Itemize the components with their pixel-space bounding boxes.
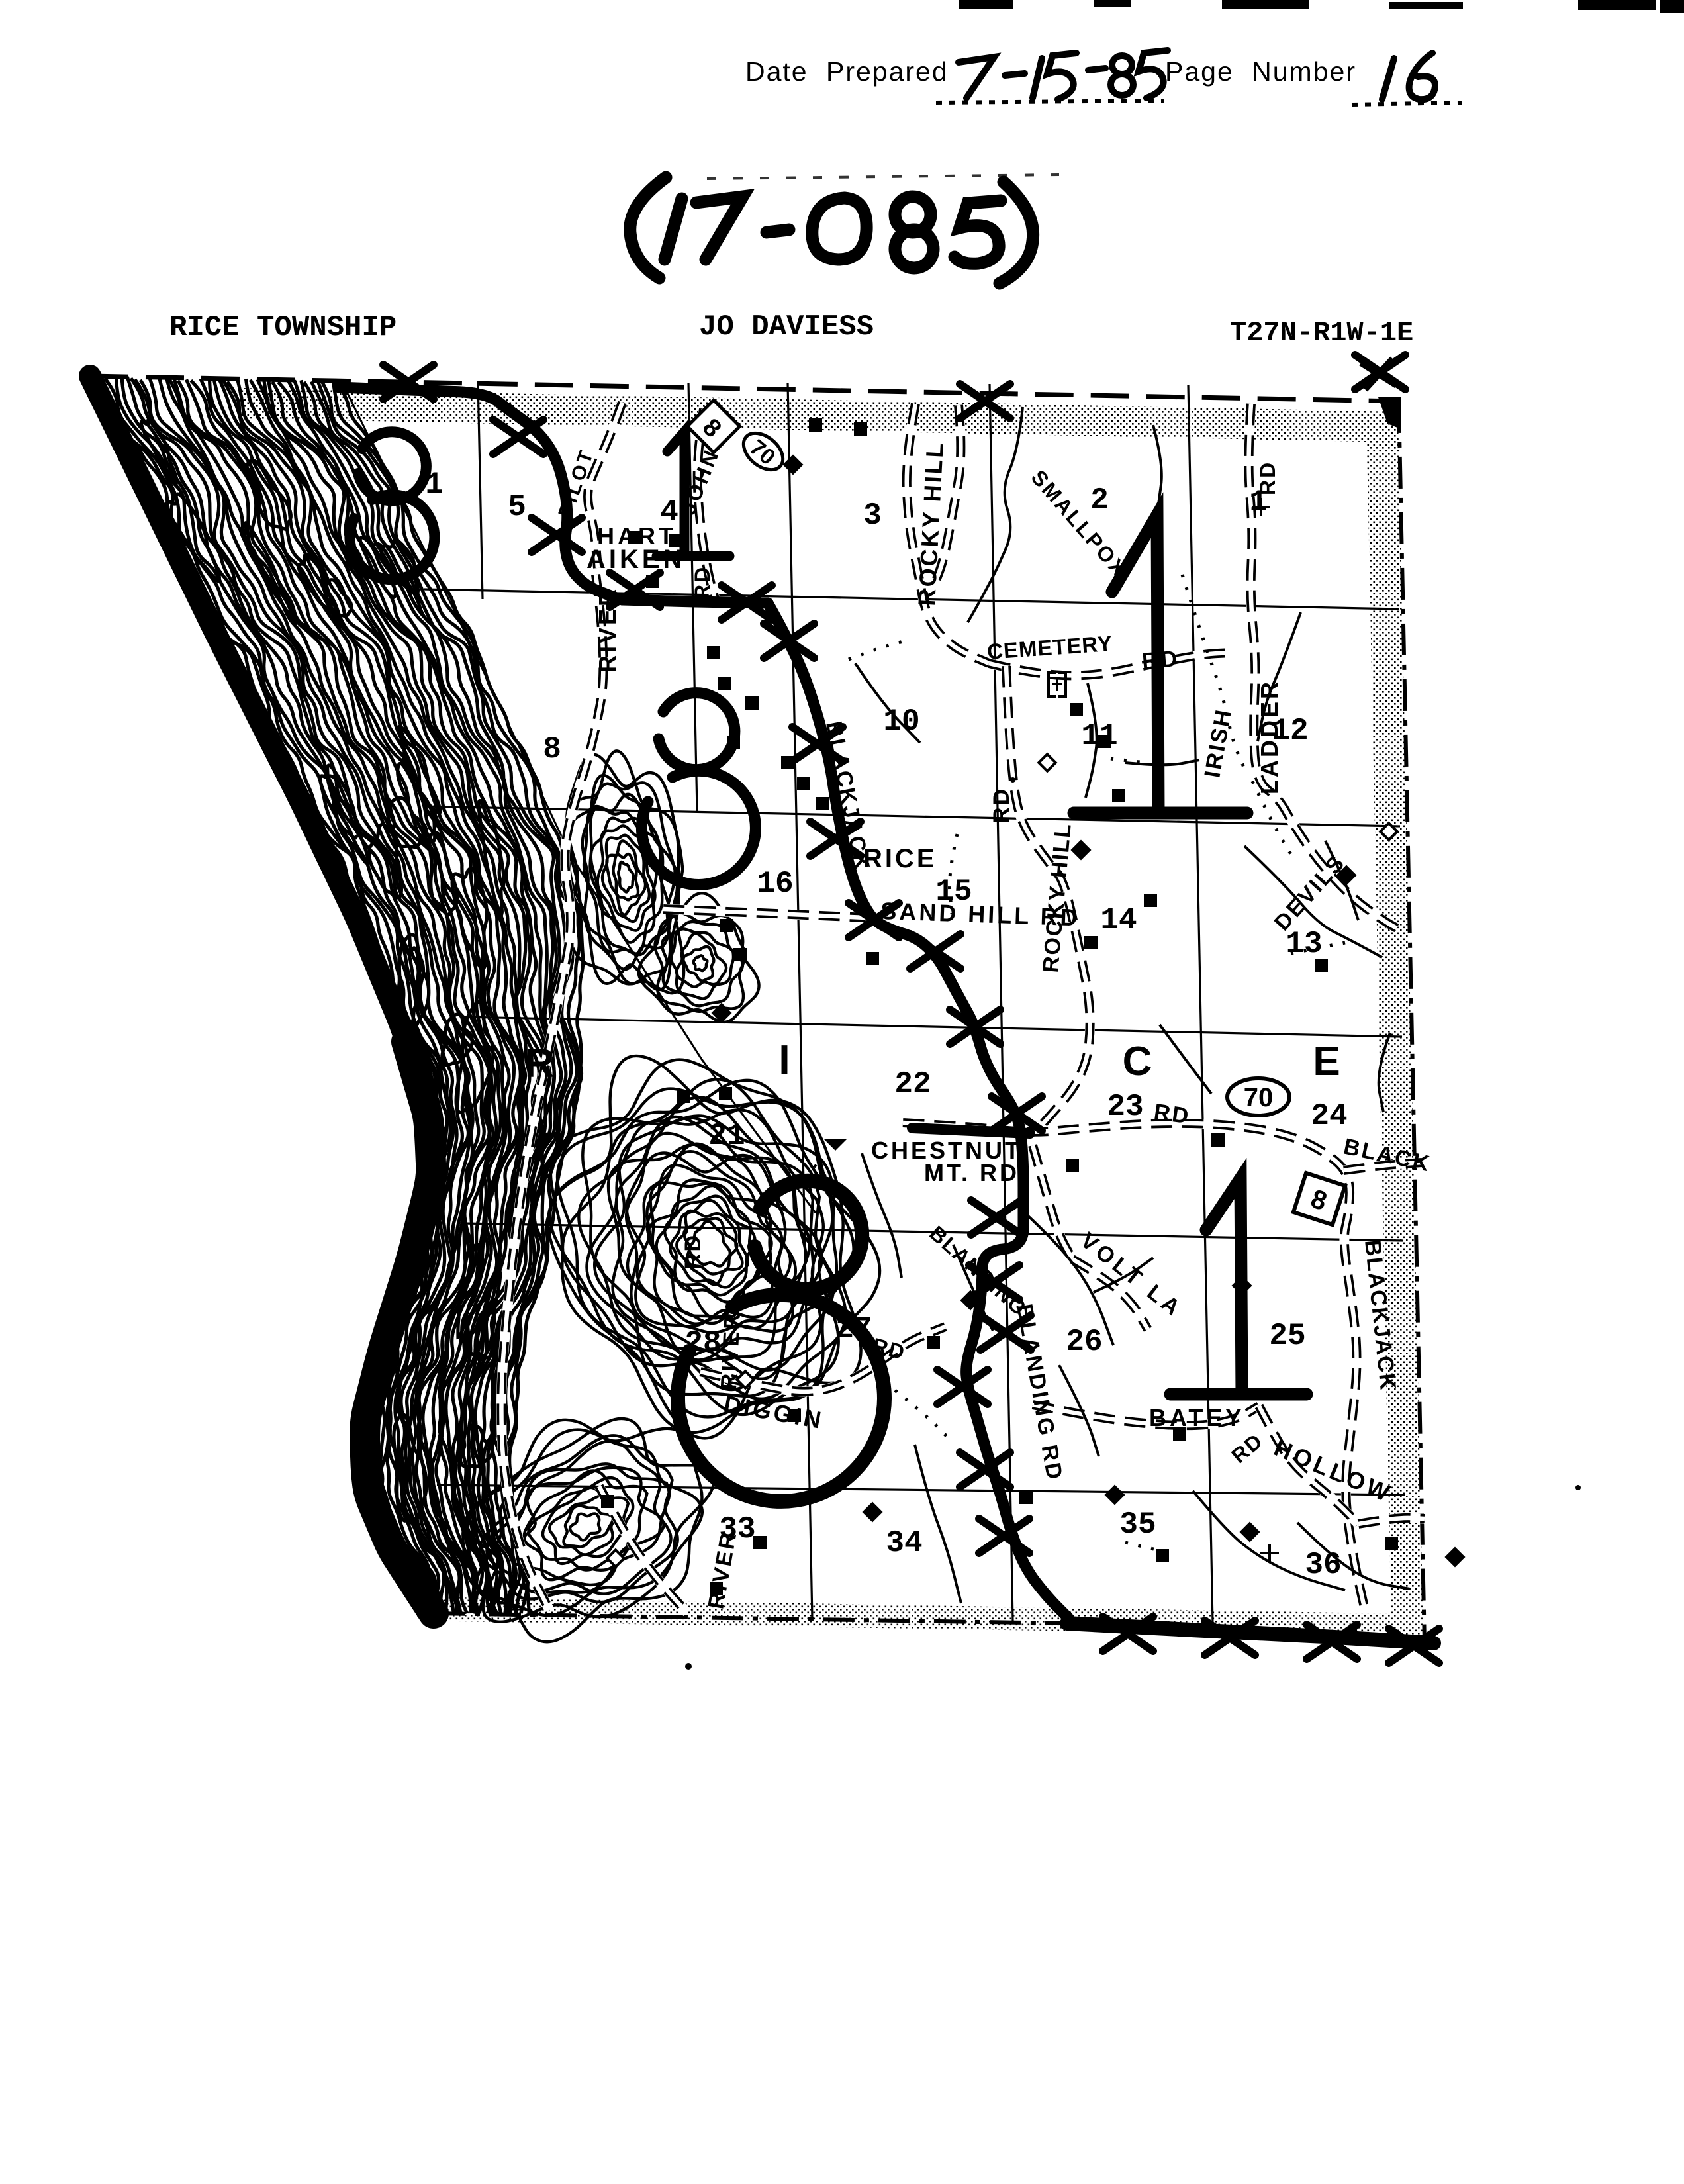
svg-text:1: 1 xyxy=(1249,485,1268,520)
svg-text:2: 2 xyxy=(1090,483,1109,518)
svg-text:10: 10 xyxy=(883,704,919,739)
svg-text:5: 5 xyxy=(508,490,526,524)
svg-text:BATEY: BATEY xyxy=(1149,1404,1244,1431)
svg-text:13: 13 xyxy=(1286,927,1322,961)
svg-text:R: R xyxy=(525,1041,555,1086)
svg-text:3: 3 xyxy=(863,499,882,533)
svg-text:12: 12 xyxy=(1272,714,1308,748)
svg-text:23: 23 xyxy=(1107,1090,1143,1124)
svg-text:34: 34 xyxy=(886,1526,922,1560)
svg-text:RICE: RICE xyxy=(863,844,937,873)
svg-text:RD: RD xyxy=(680,1233,706,1270)
svg-text:16: 16 xyxy=(757,867,793,901)
svg-text:26: 26 xyxy=(1066,1325,1102,1359)
svg-text:36: 36 xyxy=(1305,1548,1341,1582)
svg-text:MT. RD: MT. RD xyxy=(924,1159,1019,1186)
svg-text:RICE TOWNSHIP: RICE TOWNSHIP xyxy=(169,311,397,344)
svg-text:24: 24 xyxy=(1311,1099,1347,1133)
svg-text:Date Prepared: Date Prepared xyxy=(745,56,949,87)
svg-text:4: 4 xyxy=(660,495,678,530)
svg-text:22: 22 xyxy=(894,1067,931,1102)
svg-text:21: 21 xyxy=(708,1119,745,1153)
svg-text:Page Number: Page Number xyxy=(1165,56,1356,87)
svg-text:C: C xyxy=(1123,1039,1152,1084)
svg-text:70: 70 xyxy=(1244,1083,1274,1112)
svg-text:35: 35 xyxy=(1119,1507,1156,1542)
svg-text:T27N-R1W-1E: T27N-R1W-1E xyxy=(1230,317,1413,349)
svg-text:RD: RD xyxy=(989,787,1014,824)
svg-text:I: I xyxy=(778,1037,790,1083)
svg-text:15: 15 xyxy=(935,875,972,909)
svg-text:14: 14 xyxy=(1100,903,1137,937)
svg-text:RD: RD xyxy=(690,565,714,600)
svg-text:E: E xyxy=(1313,1039,1340,1084)
svg-text:25: 25 xyxy=(1269,1319,1305,1353)
svg-text:33: 33 xyxy=(719,1512,755,1546)
svg-text:8: 8 xyxy=(543,732,561,767)
svg-text:RD: RD xyxy=(1152,1099,1192,1129)
svg-text:JO DAVIESS: JO DAVIESS xyxy=(699,310,874,344)
